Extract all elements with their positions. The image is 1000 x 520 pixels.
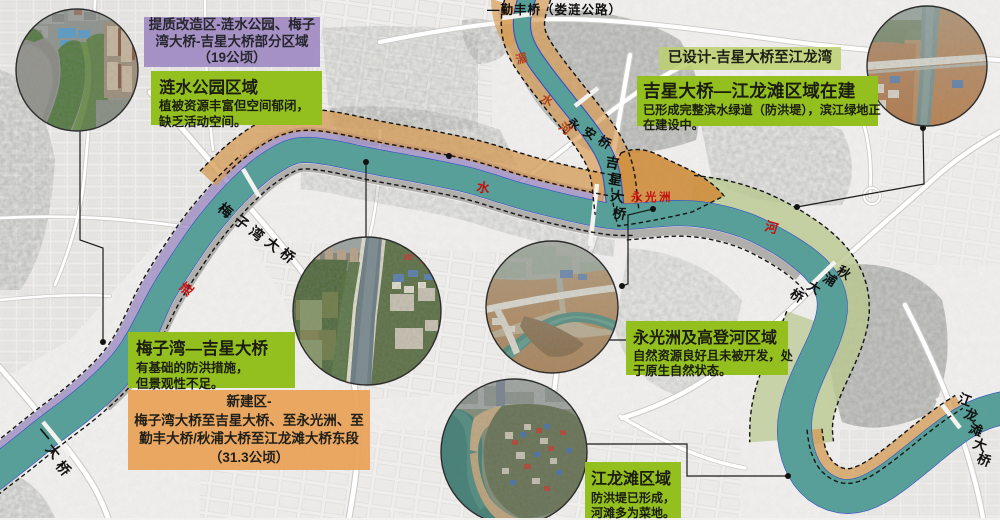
- svg-text:—勤丰桥（娄涟公路）: —勤丰桥（娄涟公路）: [487, 2, 622, 17]
- svg-text:吉: 吉: [604, 153, 620, 171]
- svg-text:星: 星: [607, 171, 623, 188]
- svg-text:永光洲: 永光洲: [630, 190, 673, 204]
